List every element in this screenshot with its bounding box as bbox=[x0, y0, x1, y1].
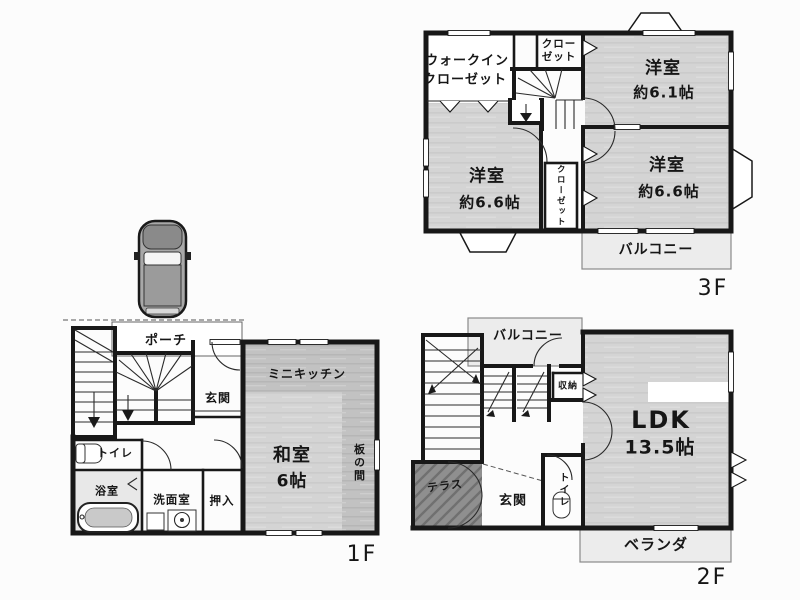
floorplan-page: ウォークイン クローゼット クロー ゼット 洋室 約6.1帖 洋室 約6.6帖 … bbox=[0, 0, 800, 600]
label-entrance-2f: 玄関 bbox=[499, 495, 527, 508]
ldk-counter bbox=[648, 382, 731, 402]
label-entrance-1f: 玄関 bbox=[205, 392, 231, 404]
label-closet-mid: クローゼット bbox=[556, 165, 565, 228]
floor-plan-3f bbox=[424, 13, 753, 269]
room-bedroom-6-6-right bbox=[585, 127, 731, 229]
label-bedroom-a-name: 洋室 bbox=[645, 61, 681, 78]
car-top-view bbox=[134, 221, 191, 317]
car-windshield bbox=[144, 252, 181, 265]
label-toilet-1f: トイレ bbox=[97, 448, 133, 459]
car-mirror-right bbox=[185, 252, 191, 260]
car-roof bbox=[144, 265, 181, 306]
car-rear-window bbox=[146, 308, 179, 314]
label-bedroom-a-size: 約6.1帖 bbox=[633, 86, 695, 101]
car-hood bbox=[143, 225, 182, 249]
label-walkin-closet-line1: ウォークイン bbox=[425, 55, 509, 68]
label-oshiire: 押入 bbox=[210, 495, 235, 507]
car-mirror-left bbox=[134, 252, 140, 260]
label-toilet-2f: トイレ bbox=[557, 472, 567, 508]
label-itanoma: 板の間 bbox=[354, 444, 365, 483]
room-bedroom-6-1 bbox=[585, 35, 731, 127]
floor-plan-2f bbox=[413, 318, 746, 562]
label-ldk-name: LDK bbox=[631, 408, 691, 432]
vanity bbox=[147, 513, 164, 530]
label-closet-top-line1: クロー bbox=[542, 39, 577, 50]
floor-label-1f: 1F bbox=[347, 544, 378, 566]
bay-window-top bbox=[627, 13, 683, 33]
label-walkin-closet-line2: クローゼット bbox=[423, 74, 507, 87]
label-veranda-2f: ベランダ bbox=[624, 538, 688, 553]
label-washitsu-size: 6帖 bbox=[277, 474, 308, 491]
label-ldk-size: 13.5帖 bbox=[625, 439, 696, 458]
label-porch-1f: ポーチ bbox=[145, 335, 187, 348]
bay-window-right bbox=[731, 148, 752, 210]
label-washroom: 洗面室 bbox=[153, 494, 191, 506]
label-bedroom-b-name: 洋室 bbox=[469, 169, 505, 186]
label-balcony-3f: バルコニー bbox=[619, 243, 694, 257]
label-bedroom-c-size: 約6.6帖 bbox=[638, 185, 700, 200]
bay-window-bottom bbox=[459, 231, 517, 252]
floor-label-3f: 3F bbox=[698, 278, 729, 300]
label-balcony-2f: バルコニー bbox=[493, 330, 563, 343]
label-closet-top-line2: ゼット bbox=[542, 52, 577, 63]
label-bedroom-b-size: 約6.6帖 bbox=[459, 196, 521, 211]
stairs-3f bbox=[516, 69, 583, 129]
label-bedroom-c-name: 洋室 bbox=[649, 158, 685, 175]
label-washitsu-name: 和室 bbox=[273, 447, 311, 465]
label-bathroom: 浴室 bbox=[95, 486, 119, 497]
floor-label-2f: 2F bbox=[697, 567, 728, 589]
label-storage-2f: 収納 bbox=[558, 383, 578, 392]
label-mini-kitchen: ミニキッチン bbox=[268, 368, 346, 380]
